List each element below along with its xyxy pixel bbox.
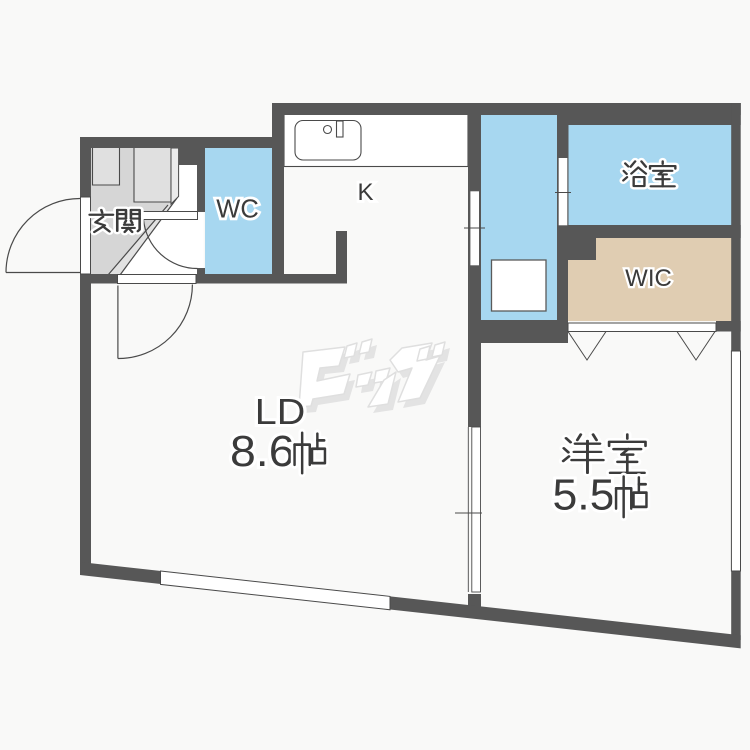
svg-text:5.5: 5.5	[553, 471, 615, 520]
svg-text:8.6: 8.6	[230, 427, 295, 476]
svg-text:K: K	[357, 179, 373, 206]
svg-text:WC: WC	[216, 195, 258, 223]
svg-text:LD: LD	[255, 391, 306, 432]
svg-text:WIC: WIC	[625, 265, 672, 292]
